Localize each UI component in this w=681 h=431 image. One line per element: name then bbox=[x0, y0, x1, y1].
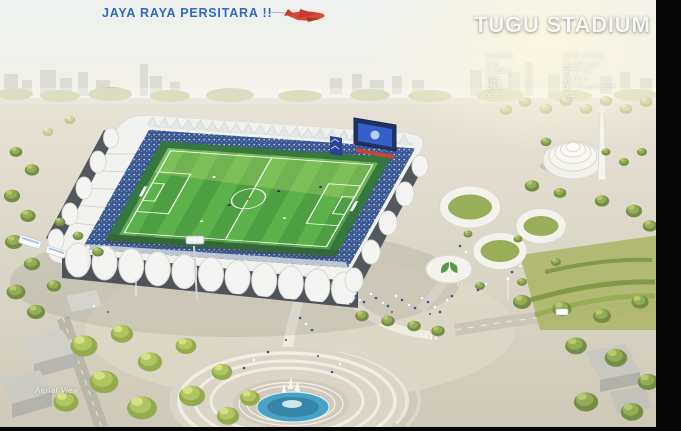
spec-row-client: Client DKI Government bbox=[486, 84, 615, 92]
banner-text: JAYA RAYA PERSITARA !! bbox=[102, 6, 272, 20]
view-caption: Aerial View bbox=[35, 386, 79, 395]
spec-value: Stadium bbox=[563, 76, 589, 84]
spec-row-year: Year 2022 bbox=[486, 92, 615, 100]
spec-label: Location bbox=[486, 53, 563, 61]
bottom-frame-bar bbox=[0, 427, 681, 431]
spec-row-building: Building 4,700 m2 bbox=[486, 68, 615, 76]
right-frame-bar bbox=[656, 0, 681, 431]
spec-value: 4,700 m2 bbox=[563, 68, 592, 76]
spec-row-location: Location North Jakarta bbox=[486, 53, 615, 61]
spec-label: Building bbox=[486, 68, 563, 76]
spec-value: DKI Government bbox=[563, 84, 615, 92]
page-title: TUGU STADIUM bbox=[474, 12, 651, 38]
spec-label: Year bbox=[486, 92, 563, 100]
spec-label: Client bbox=[486, 84, 563, 92]
spec-value: 2022 bbox=[563, 92, 579, 100]
stadium-render-slide: JAYA RAYA PERSITARA !! TUGU STADIUM Loca… bbox=[0, 0, 681, 431]
spec-value: North Jakarta bbox=[563, 53, 605, 61]
spec-label: Type bbox=[486, 76, 563, 84]
project-specs: Location North Jakarta Site 30,000 sqm B… bbox=[486, 53, 615, 99]
spec-row-type: Type Stadium bbox=[486, 76, 615, 84]
